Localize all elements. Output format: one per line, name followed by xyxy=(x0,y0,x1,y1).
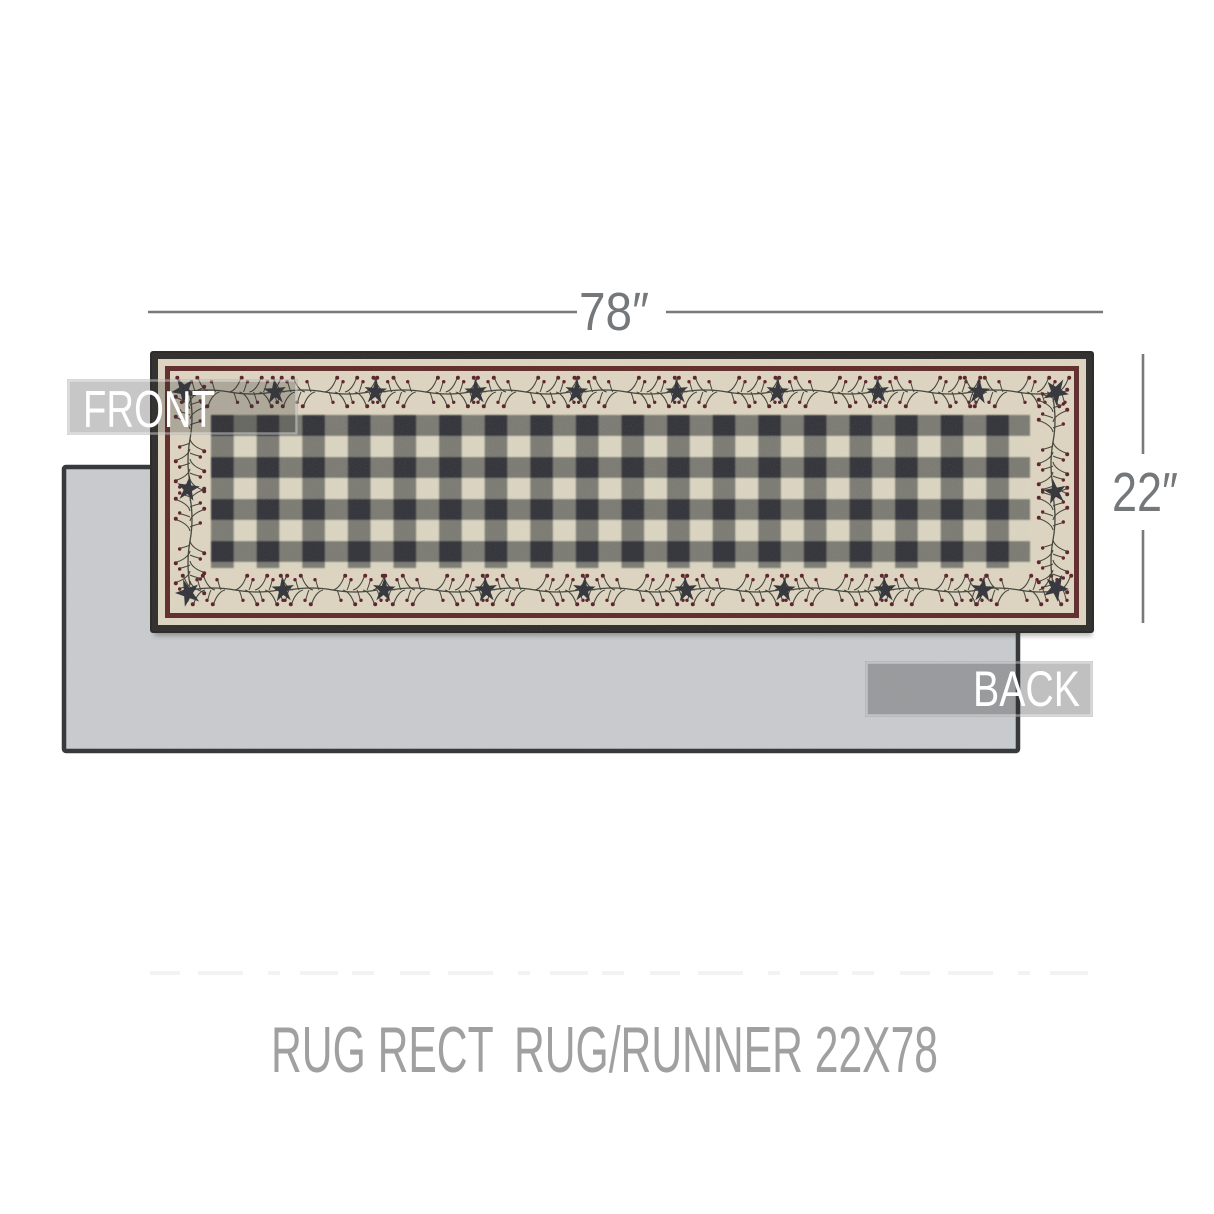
svg-text:FRONT: FRONT xyxy=(83,381,215,439)
svg-text:RUG RECT RUG/RUNNER 22X78: RUG RECT RUG/RUNNER 22X78 xyxy=(271,1013,938,1086)
svg-text:BACK: BACK xyxy=(973,661,1080,717)
svg-text:78″: 78″ xyxy=(579,282,649,342)
svg-text:22″: 22″ xyxy=(1112,461,1178,523)
